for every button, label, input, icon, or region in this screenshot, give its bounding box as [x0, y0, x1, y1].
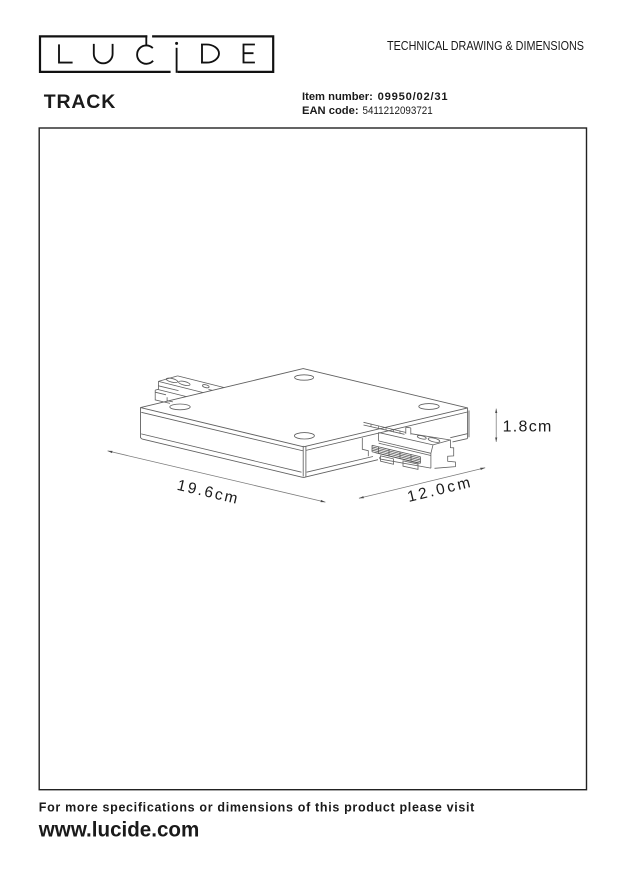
- svg-text:TRACK: TRACK: [44, 91, 116, 113]
- svg-text:Item number:: Item number:: [302, 91, 373, 103]
- svg-text:19.6cm: 19.6cm: [175, 477, 239, 508]
- svg-text:EAN code:: EAN code:: [302, 105, 359, 117]
- svg-text:09950/02/31: 09950/02/31: [378, 91, 448, 103]
- svg-text:TECHNICAL DRAWING & DIMENSIONS: TECHNICAL DRAWING & DIMENSIONS: [387, 38, 584, 53]
- svg-text:1.8cm: 1.8cm: [503, 419, 552, 436]
- svg-text:For more specifications or dim: For more specifications or dimensions of…: [39, 801, 475, 815]
- svg-text:www.lucide.com: www.lucide.com: [38, 819, 199, 842]
- svg-text:5411212093721: 5411212093721: [363, 105, 433, 117]
